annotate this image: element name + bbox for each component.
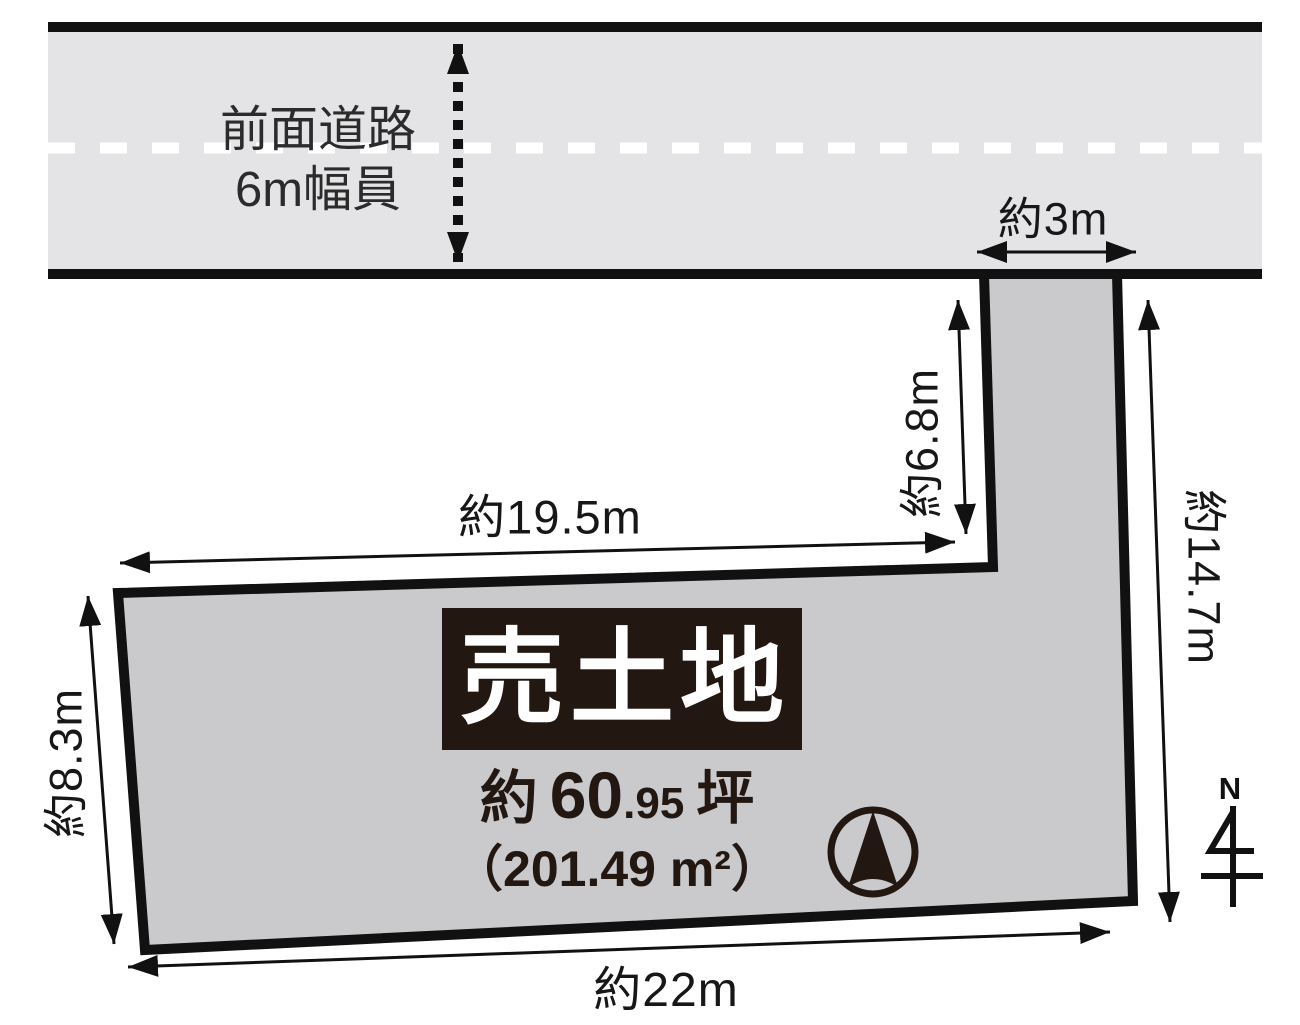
dimension-label-right-edge: 約14.7m (1176, 489, 1241, 665)
area-tsubo-prefix: 約 (480, 766, 538, 831)
dimension-label-upper-edge: 約19.5m (458, 479, 642, 548)
sale-label-box: 売土地 (442, 608, 802, 750)
dimension-label-approach-width: 約3m (998, 183, 1109, 248)
dimension-arrow-right-edge (1148, 300, 1170, 922)
dimension-arrow-approach-depth (958, 300, 966, 534)
road-name-line1: 前面道路 (193, 100, 443, 160)
sale-label: 売土地 (460, 627, 790, 731)
road-name-line2: 6m幅員 (193, 160, 443, 220)
dimension-label-left-edge: 約8.3m (30, 688, 95, 838)
area-tsubo-label: 約60.95坪 (480, 762, 755, 828)
land-plot-diagram: 前面道路 6m幅員 約3m 約6.8m 約19.5m 約8.3m 約22m 約1… (0, 0, 1300, 1025)
area-tsubo-unit: 坪 (696, 766, 754, 831)
north-letter-label: N (1219, 771, 1241, 807)
road-name-label: 前面道路 6m幅員 (193, 100, 443, 220)
dimension-label-approach-depth: 約6.8m (886, 368, 951, 518)
dimension-label-bottom-edge: 約22m (593, 950, 738, 1020)
area-tsubo-frac: .95 (623, 779, 684, 828)
north-mark-icon (1201, 806, 1263, 907)
area-sqm-label: （201.49 m²） (453, 844, 781, 894)
area-tsubo-int: 60 (550, 758, 623, 832)
